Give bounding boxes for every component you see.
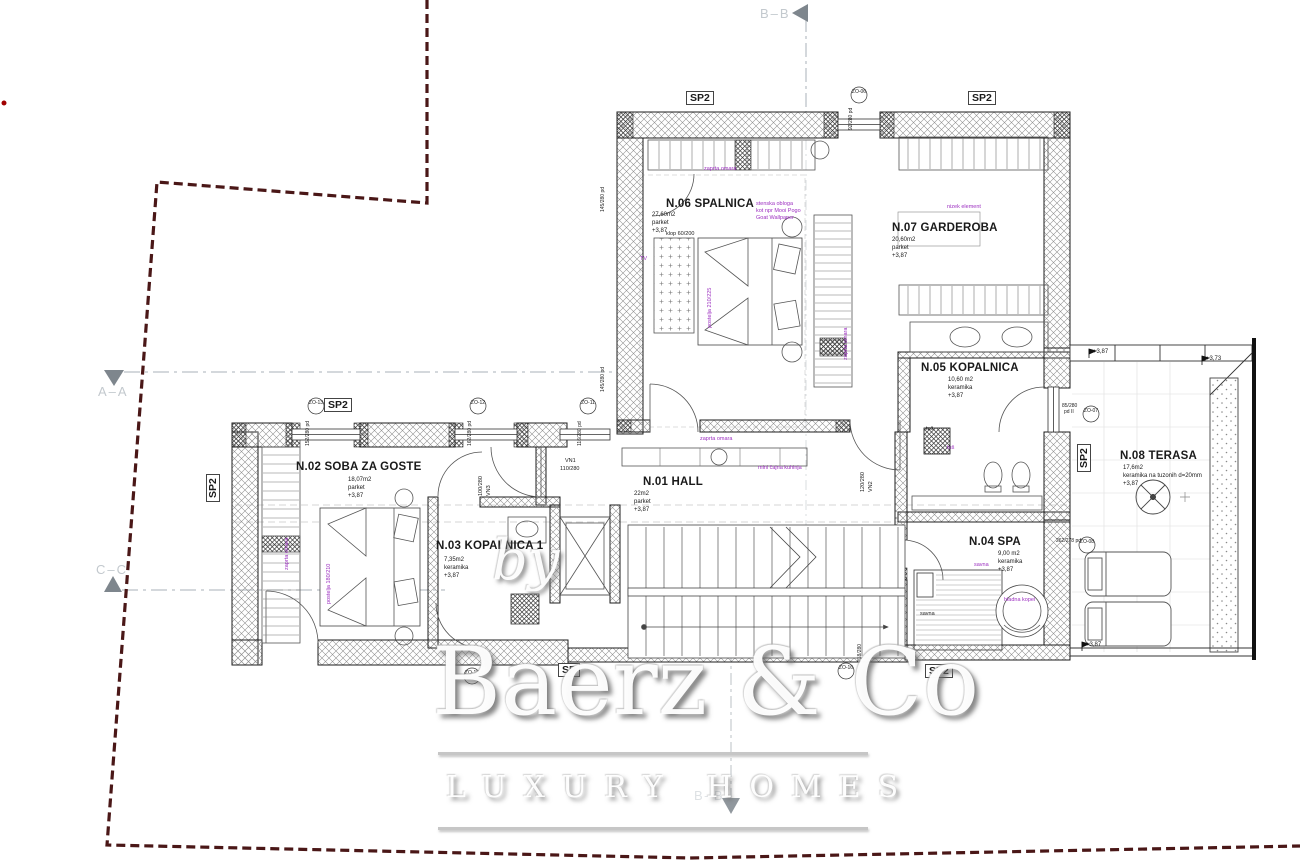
annotation-closet-top: zaprta omara bbox=[704, 166, 736, 172]
room-floor-n08: keramika na tuzonih d=20mm bbox=[1123, 472, 1202, 480]
opening-dim-zo13: 152/280 pd bbox=[305, 421, 311, 446]
room-area-n08: 17,6m2 bbox=[1123, 464, 1202, 472]
annotation-mini-kitchen: mini čajna kuhinja bbox=[758, 465, 802, 471]
door-dim-vn3: 100/280 bbox=[478, 476, 484, 496]
room-label-n05: N.05 KOPALNICA bbox=[921, 362, 1019, 374]
annotation-cold-bath: hladna kopel bbox=[1004, 597, 1035, 603]
annotation-low-unit: nizek element bbox=[947, 204, 981, 210]
room-floor-n06: parket bbox=[652, 219, 675, 227]
wall-dim-1: 145/280 pd bbox=[600, 187, 606, 212]
annotation-sauna: savna bbox=[974, 562, 989, 568]
panel-sp2-top-left: SP2 bbox=[686, 91, 714, 105]
annotation-closet-bottom: zaprta omara bbox=[700, 436, 732, 442]
elevation-terrace-b: +3,73 bbox=[1206, 355, 1221, 363]
opening-code-zo07: ZO-07 bbox=[1079, 408, 1103, 414]
door-label-vn3: VN3 bbox=[486, 485, 492, 496]
room-label-n04: N.04 SPA bbox=[969, 536, 1021, 548]
watermark-rule-top bbox=[438, 752, 868, 755]
room-level-n05: +3,87 bbox=[948, 392, 973, 400]
panel-sp2-terrace: SP2 bbox=[1077, 444, 1091, 472]
watermark-tagline: LUXURY HOMES bbox=[446, 770, 915, 805]
wall-dim-2: 145/280 pd bbox=[600, 367, 606, 392]
opening-code-zo11: ZO-11 bbox=[576, 400, 600, 406]
annotation-cladding-1: stenska obloga bbox=[756, 201, 793, 207]
room-level-n02: +3,87 bbox=[348, 492, 371, 500]
door-label-vn2: VN2 bbox=[868, 481, 874, 492]
panel-sp2-n02: SP2 bbox=[324, 398, 352, 412]
door-dim-vn1: 110/280 bbox=[560, 466, 579, 472]
room-floor-n02: parket bbox=[348, 484, 371, 492]
room-info-n07: 20,60m2 parket +3,87 bbox=[892, 236, 915, 260]
annotation-cladding-2: kot npr Mooi Pogo bbox=[756, 208, 801, 214]
door-label-vn1: VN1 bbox=[565, 458, 576, 464]
opening-code-zo13: ZO-13 bbox=[304, 400, 328, 406]
annotation-shower-1: tuš bbox=[926, 426, 933, 432]
annotation-closet-right: zaprta omara bbox=[843, 328, 849, 360]
section-arrow-bb-top bbox=[792, 4, 808, 22]
boundary-point bbox=[2, 101, 7, 106]
watermark-rule-bottom bbox=[438, 827, 868, 830]
opening-dim-zo12: 162/280 pd bbox=[467, 421, 473, 446]
annotation-bed-n06: postelja 210/225 bbox=[707, 288, 713, 328]
room-floor-n07: parket bbox=[892, 244, 915, 252]
elevation-terrace-a: +3,87 bbox=[1093, 348, 1108, 356]
annotation-sauna-2: savna bbox=[920, 611, 935, 617]
room-info-n05: 10,60 m2 keramika +3,87 bbox=[948, 376, 973, 400]
room-level-n08: +3,87 bbox=[1123, 480, 1202, 488]
opening-code-zo12: ZO-12 bbox=[466, 400, 490, 406]
room-area-n05: 10,60 m2 bbox=[948, 376, 973, 384]
door-dim-vn2: 120/280 bbox=[860, 472, 866, 492]
opening-dim-zo08: 262/278 pd bbox=[1056, 538, 1081, 544]
room-floor-n01: parket bbox=[634, 498, 651, 506]
room-info-n04: 9,00 m2 keramika +3,87 bbox=[998, 550, 1022, 574]
annotation-shower-2: tuš bbox=[947, 445, 954, 451]
room-level-n01: +3,87 bbox=[634, 506, 651, 514]
room-level-n04: +3,87 bbox=[998, 566, 1022, 574]
annotation-bench: klop 60/200 bbox=[666, 231, 694, 237]
room-area-n06: 27,60m2 bbox=[652, 211, 675, 219]
room-floor-n05: keramika bbox=[948, 384, 973, 392]
room-floor-n03: keramika bbox=[444, 564, 468, 572]
room-level-n03: +3,87 bbox=[444, 572, 468, 580]
section-arrow-cc bbox=[104, 576, 122, 592]
panel-sp2-top-right: SP2 bbox=[968, 91, 996, 105]
opening-code-zo06: ZO-06 bbox=[847, 89, 871, 95]
annotation-tv: TV bbox=[640, 256, 647, 262]
section-label-aa: A–A bbox=[98, 384, 129, 399]
room-label-n01: N.01 HALL bbox=[643, 476, 703, 488]
section-label-bb-top: B–B bbox=[760, 6, 791, 21]
terrace bbox=[1070, 338, 1256, 660]
watermark-by: by bbox=[492, 528, 559, 593]
panel-sp2-left: SP2 bbox=[206, 474, 220, 502]
room-label-n08: N.08 TERASA bbox=[1120, 450, 1197, 462]
room-area-n03: 7,35m2 bbox=[444, 556, 468, 564]
annotation-cladding-3: Goat Wallpaper bbox=[756, 215, 794, 221]
room-label-n07: N.07 GARDEROBA bbox=[892, 222, 998, 234]
room-label-n02: N.02 SOBA ZA GOSTE bbox=[296, 461, 421, 473]
annotation-closet-n02: zaprta omara bbox=[284, 538, 290, 570]
opening-dim2-zo07: pd II bbox=[1064, 409, 1074, 415]
room-info-n03: 7,35m2 keramika +3,87 bbox=[444, 556, 468, 580]
opening-dim-zo06: 92/280 pd bbox=[848, 108, 854, 130]
room-floor-n04: keramika bbox=[998, 558, 1022, 566]
watermark-brand: Baerz & Co bbox=[432, 628, 979, 737]
room-level-n07: +3,87 bbox=[892, 252, 915, 260]
section-label-cc: C–C bbox=[96, 562, 128, 577]
room-area-n04: 9,00 m2 bbox=[998, 550, 1022, 558]
opening-dim-zo11: 116/280 pd bbox=[577, 421, 583, 446]
room-label-n06: N.06 SPALNICA bbox=[666, 198, 754, 210]
room-area-n01: 22m2 bbox=[634, 490, 651, 498]
room-info-n01: 22m2 parket +3,87 bbox=[634, 490, 651, 514]
room-area-n02: 18,07m2 bbox=[348, 476, 371, 484]
room-info-n08: 17,6m2 keramika na tuzonih d=20mm +3,87 bbox=[1123, 464, 1202, 488]
floor-plan: B–B B–B A–A C–C N.06 SPALNICA 27,60m2 pa… bbox=[0, 0, 1300, 867]
annotation-bed-n02: postelja 180/210 bbox=[326, 564, 332, 604]
room-area-n07: 20,60m2 bbox=[892, 236, 915, 244]
elevation-terrace-c: +3,87 bbox=[1086, 641, 1101, 649]
room-info-n02: 18,07m2 parket +3,87 bbox=[348, 476, 371, 500]
